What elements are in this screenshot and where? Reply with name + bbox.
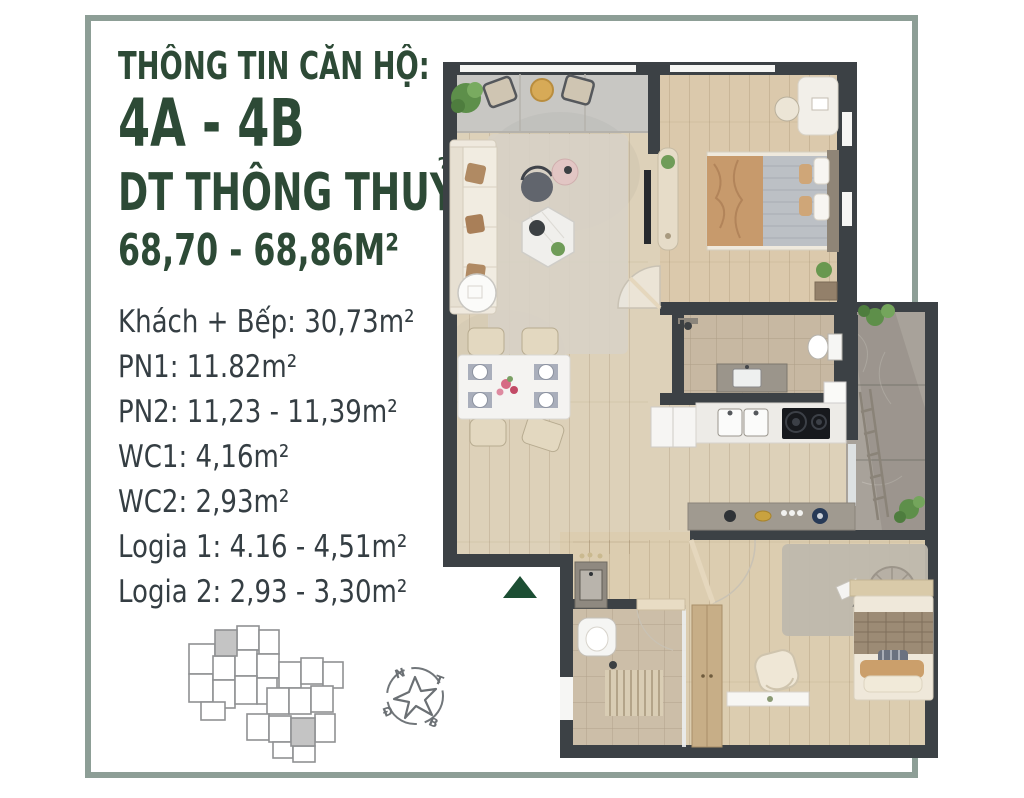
shower-icon: [684, 322, 692, 330]
dining-chair: [468, 328, 504, 355]
compass-label: Đ: [381, 703, 396, 720]
wc2-glass-panel: [682, 609, 686, 747]
keyplan-mini-map: [183, 622, 351, 770]
entrance-arrow-icon: [503, 576, 537, 598]
keyplan-highlighted-unit: [215, 630, 237, 656]
page-title: THÔNG TIN CĂN HỘ:: [118, 46, 466, 86]
side-table-icon: [531, 79, 553, 101]
shower-icon: [609, 661, 617, 669]
compass-label: N: [393, 665, 407, 681]
divider-cabinet: [658, 148, 678, 250]
toilet-icon: [808, 334, 842, 360]
floorplan: [430, 52, 942, 764]
cooktop: [782, 408, 830, 439]
dining-chair: [470, 419, 506, 446]
nightstand: [815, 282, 837, 300]
dining-chair: [522, 328, 558, 355]
plant-icon: [816, 262, 832, 278]
area-range: 68,70 - 68,86M²: [118, 228, 466, 274]
accent-chair: [521, 172, 553, 202]
page: THÔNG TIN CĂN HỘ: 4A - 4B DT THÔNG THUỶ …: [0, 0, 1024, 798]
bed-1: [707, 150, 839, 252]
unit-name: 4A - 4B: [118, 92, 456, 156]
kitchen-island: [688, 503, 855, 530]
wc1-door: [824, 382, 846, 403]
tv: [644, 170, 651, 244]
plant-icon: [661, 155, 675, 169]
balcony-glass-door: [848, 444, 856, 506]
desk-chair: [775, 97, 799, 121]
toilet-icon: [578, 618, 616, 656]
round-table: [458, 274, 496, 312]
bed-2: [850, 580, 933, 700]
plant-icon: [551, 242, 565, 256]
area-type-label: DT THÔNG THUỶ: [118, 166, 456, 220]
keyplan-highlighted-unit: [291, 718, 315, 746]
